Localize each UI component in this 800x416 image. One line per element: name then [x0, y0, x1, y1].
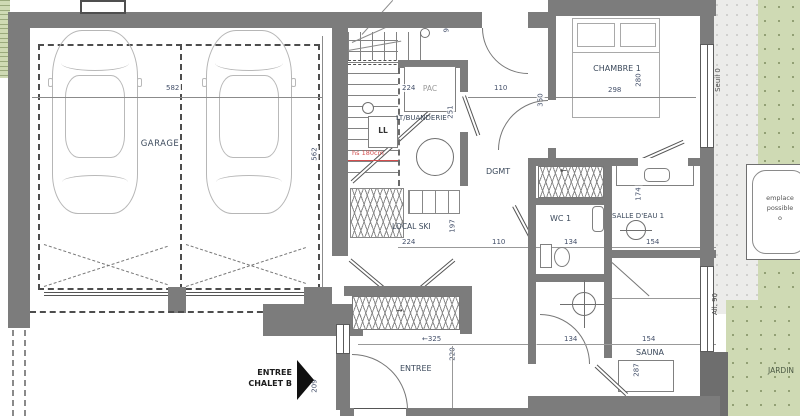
sauna-corner-diagonal — [612, 262, 650, 296]
entry-closet-right-pier — [460, 286, 472, 334]
garage-door-left — [44, 292, 168, 296]
car-rear-window — [216, 175, 282, 189]
chambre-door-arc — [498, 100, 548, 150]
dim-hall-top: 110 — [492, 84, 509, 92]
entry-marker-line1: ENTREE — [222, 368, 292, 377]
closet-arrow-icon: ← — [560, 166, 567, 175]
driveway-dash-right — [24, 330, 26, 416]
car-mirror-icon — [291, 78, 296, 87]
dim-line-garage-depth — [322, 36, 323, 292]
chambre1-label: CHAMBRE 1 — [572, 64, 662, 73]
headroom-label: hs 180cm — [352, 149, 384, 157]
washer-label: LL — [368, 126, 398, 135]
entry-closet-top-wall — [344, 286, 470, 296]
stairs-top-post — [420, 28, 430, 38]
entry-direction-arrow-icon — [297, 360, 314, 400]
toilet-tank — [540, 244, 552, 268]
car-mirror-icon — [202, 78, 207, 87]
dim-garage-depth: 562 — [311, 145, 319, 162]
chambre-closet — [538, 166, 604, 198]
entry-closet — [352, 296, 460, 330]
dim-hall-mid: 110 — [490, 238, 507, 246]
wall-shower-sauna-divider — [604, 258, 612, 358]
wc-label: WC 1 — [550, 214, 571, 223]
dim-line-bottom — [358, 344, 716, 345]
dim-sauna-depth: 287 — [633, 361, 641, 378]
entry-side-window — [336, 324, 350, 354]
ski-shelves — [408, 190, 460, 214]
entry-marker-line2: CHALET B — [222, 379, 292, 388]
car-left — [52, 30, 138, 214]
threshold-label: Seuil 0 — [714, 66, 722, 94]
wall-laundry-right — [460, 68, 468, 92]
bed-pillow-left — [577, 23, 615, 47]
sauna-bench — [618, 360, 674, 392]
bath-label: SALLE D'EAU 1 — [612, 212, 664, 220]
dim-laundry-depth: 251 — [447, 103, 455, 120]
dim-wc-width: 134 — [562, 238, 579, 246]
garage-door-pier-center — [168, 287, 186, 313]
sauna-bench-line — [612, 298, 700, 299]
top-door-opening — [482, 12, 528, 28]
dim-line-garage-width — [32, 97, 322, 98]
top-door-arc — [482, 28, 528, 74]
laundry-label: LT/BUANDERIE — [396, 114, 447, 122]
dim-shower-width: 134 — [562, 335, 579, 343]
top-wall-vent — [80, 0, 126, 14]
hot-tub-note-line2: possible — [756, 204, 800, 212]
bed-pillow-right — [620, 23, 656, 47]
wall-top-right — [548, 0, 716, 16]
dim-laundry-width: 224 — [400, 84, 417, 92]
hall-label: DGMT — [486, 167, 510, 176]
entry-door-threshold — [354, 408, 406, 416]
dim-line-entry-depth — [452, 346, 453, 408]
car-right — [206, 30, 292, 214]
garage-label: GARAGE — [120, 139, 200, 149]
garage-bay-divider — [180, 44, 182, 290]
wall-laundry-right-lower — [460, 132, 468, 186]
car-rear-window — [62, 175, 128, 189]
car-windshield — [61, 55, 130, 71]
headroom-line — [348, 160, 398, 161]
entry-closet-arrow-icon: → — [396, 306, 403, 315]
car-windshield — [215, 55, 284, 71]
hot-tub-note-line3: o — [756, 214, 800, 222]
driveway-dash-left — [12, 330, 14, 416]
car-mirror-icon — [48, 78, 53, 87]
dim-chambre-depth: 280 — [635, 71, 643, 88]
wall-chambre-left-upper — [548, 16, 556, 100]
wall-top-left — [8, 12, 556, 28]
dim-bath-width: 154 — [644, 238, 661, 246]
floor-plan: JARDIN emplace possible o 582 562 GARAGE — [0, 0, 800, 416]
bed-sheet-line — [572, 52, 660, 53]
car-mirror-icon — [137, 78, 142, 87]
dim-closet-width: ←325 — [420, 335, 443, 343]
dim-ski-depth: 197 — [449, 217, 457, 234]
concrete-path-right — [712, 0, 760, 314]
garage-door-right — [186, 292, 304, 296]
garden-right — [758, 0, 800, 314]
bath-vanity-basin — [644, 168, 670, 182]
toilet-bowl — [554, 247, 570, 267]
stairs-top-flight — [348, 32, 432, 60]
hot-tub-inner — [752, 170, 800, 254]
sauna-label: SAUNA — [636, 348, 664, 357]
car-roof — [219, 75, 280, 159]
entry-door-arc — [352, 354, 408, 410]
car-roof — [65, 75, 126, 159]
wall-bottom-right-block — [528, 396, 720, 416]
hot-tub-note-line1: emplace — [756, 194, 800, 202]
stairs-newel-post — [362, 102, 374, 114]
chambre-window — [700, 44, 714, 148]
bath-washbasin-cross — [620, 230, 652, 231]
dim-sauna-width: 154 — [640, 335, 657, 343]
bath-door-opening — [638, 158, 688, 166]
wall-left — [8, 12, 30, 328]
garden-bottom-right — [726, 300, 800, 416]
dim-line-chambre — [556, 97, 696, 98]
dim-ski-width: 224 — [400, 238, 417, 246]
water-heater — [416, 138, 454, 176]
wall-wc-closet-bottom — [536, 198, 604, 205]
wall-wc-column-left — [528, 158, 536, 364]
wall-wc-bath-divider — [604, 158, 612, 258]
dim-garage-width: 582 — [164, 84, 181, 92]
wall-wc-bottom — [536, 274, 612, 282]
wc-basin — [592, 206, 604, 232]
dim-bath-depth: 174 — [635, 185, 643, 202]
ski-label: LOCAL SKI — [392, 222, 431, 231]
laundry-door-leaf — [462, 95, 480, 136]
dim-chambre-width: 298 — [606, 86, 623, 94]
wall-garage-stairs — [332, 28, 348, 256]
garden-label: JARDIN — [768, 366, 794, 375]
window-sill-label: All. 90 — [711, 291, 719, 317]
